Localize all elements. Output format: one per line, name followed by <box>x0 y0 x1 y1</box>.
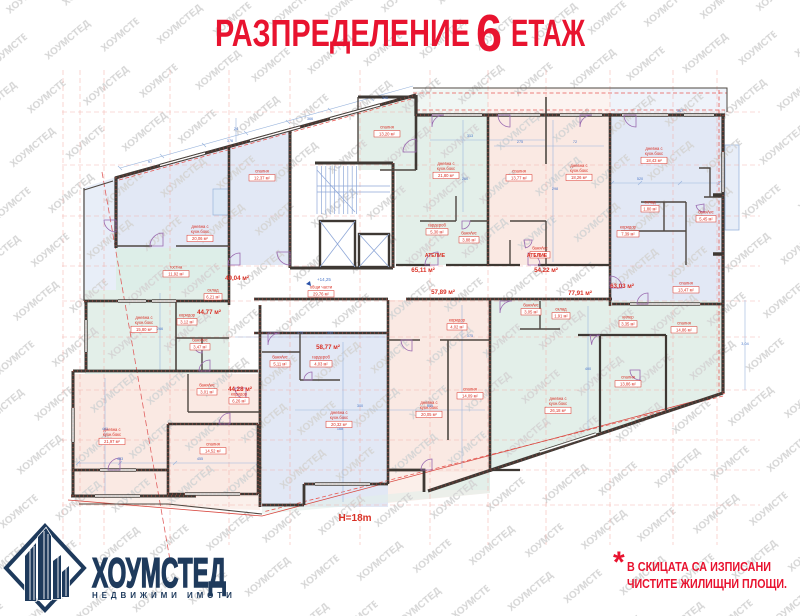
svg-text:5,11 м²: 5,11 м² <box>273 362 287 367</box>
svg-text:АТЕЛИЕ: АТЕЛИЕ <box>527 253 548 259</box>
svg-text:ЧИСТИТЕ ЖИЛИЩНИ ПЛОЩИ.: ЧИСТИТЕ ЖИЛИЩНИ ПЛОЩИ. <box>627 576 787 591</box>
svg-text:баня/wc: баня/wc <box>192 337 208 342</box>
svg-text:баня/wc: баня/wc <box>199 382 215 387</box>
svg-text:спалня: спалня <box>463 386 477 391</box>
svg-text:461: 461 <box>102 427 108 431</box>
svg-text:склад: склад <box>644 199 656 204</box>
svg-text:520: 520 <box>637 177 643 181</box>
svg-text:65,11 м²: 65,11 м² <box>411 267 435 274</box>
svg-text:20,06 м²: 20,06 м² <box>192 236 209 241</box>
svg-text:3,35 м²: 3,35 м² <box>621 322 635 327</box>
svg-text:1,80 м²: 1,80 м² <box>643 207 657 212</box>
svg-text:баня/wc: баня/wc <box>272 354 288 359</box>
svg-text:кухн.бокс: кухн.бокс <box>570 168 588 173</box>
svg-text:3,01 м²: 3,01 м² <box>200 390 214 395</box>
svg-text:168: 168 <box>337 427 343 431</box>
svg-text:376: 376 <box>227 139 233 143</box>
svg-text:кухн.бокс: кухн.бокс <box>103 432 121 437</box>
svg-text:4,03 м²: 4,03 м² <box>314 362 328 367</box>
svg-text:18,43 м²: 18,43 м² <box>646 158 663 163</box>
svg-text:11,92 м²: 11,92 м² <box>168 272 184 277</box>
svg-text:72: 72 <box>573 140 577 144</box>
svg-text:спалня: спалня <box>380 124 394 129</box>
svg-text:НЕДВИЖИМИ ИМОТИ: НЕДВИЖИМИ ИМОТИ <box>92 591 236 600</box>
svg-text:спалня: спалня <box>255 168 269 173</box>
svg-text:5,45 м²: 5,45 м² <box>699 217 713 222</box>
svg-text:97: 97 <box>148 160 152 164</box>
svg-text:400: 400 <box>585 367 591 371</box>
svg-text:гостна: гостна <box>170 264 183 269</box>
svg-text:300: 300 <box>357 404 363 408</box>
svg-text:49,04 м²: 49,04 м² <box>225 275 249 282</box>
svg-text:спалня: спалня <box>206 441 220 446</box>
svg-text:спалня: спалня <box>679 280 693 285</box>
svg-text:5,30 м²: 5,30 м² <box>430 230 444 235</box>
svg-text:14,52 м²: 14,52 м² <box>205 449 222 454</box>
svg-text:298: 298 <box>552 187 558 191</box>
svg-text:655: 655 <box>427 404 433 408</box>
svg-text:6,21 м²: 6,21 м² <box>206 295 220 300</box>
svg-text:3,12 м²: 3,12 м² <box>180 320 194 325</box>
svg-text:44,28 м²: 44,28 м² <box>228 386 252 393</box>
svg-text:14,09 м²: 14,09 м² <box>462 394 479 399</box>
svg-text:склад: склад <box>555 306 567 311</box>
svg-text:275: 275 <box>517 140 523 144</box>
svg-text:3,05 м²: 3,05 м² <box>524 310 538 315</box>
svg-text:57,89 м²: 57,89 м² <box>431 289 455 296</box>
svg-text:4,02 м²: 4,02 м² <box>450 325 464 330</box>
svg-text:коридор: коридор <box>179 312 196 317</box>
svg-text:гардероб: гардероб <box>428 222 446 227</box>
svg-text:12,37 м²: 12,37 м² <box>254 176 271 181</box>
svg-text:21,80 м²: 21,80 м² <box>438 173 455 178</box>
svg-text:В СКИЦАТА СА ИЗПИСАНИ: В СКИЦАТА СА ИЗПИСАНИ <box>627 559 771 574</box>
svg-text:13,77 м²: 13,77 м² <box>511 176 528 181</box>
svg-text:366: 366 <box>307 117 313 121</box>
svg-text:3,88 м²: 3,88 м² <box>462 238 476 243</box>
svg-text:кухн.бокс: кухн.бокс <box>191 229 209 234</box>
svg-text:15,80 м²: 15,80 м² <box>136 327 153 332</box>
svg-text:ХОУМСТЕД: ХОУМСТЕД <box>92 549 226 596</box>
svg-text:коридор: коридор <box>449 317 466 322</box>
svg-text:спалня: спалня <box>621 374 635 379</box>
svg-text:455: 455 <box>197 457 203 461</box>
svg-text:14,86 м²: 14,86 м² <box>676 328 693 333</box>
svg-text:кухн.бокс: кухн.бокс <box>645 151 663 156</box>
svg-text:21,97 м²: 21,97 м² <box>104 439 121 444</box>
svg-text:3,47 м²: 3,47 м² <box>193 345 207 350</box>
svg-text:баня/wc: баня/wc <box>461 230 477 235</box>
svg-text:266: 266 <box>157 327 163 331</box>
svg-text:29,76 м²: 29,76 м² <box>313 292 330 297</box>
svg-text:баня/wc: баня/wc <box>698 209 714 214</box>
svg-text:13,86 м²: 13,86 м² <box>620 382 637 387</box>
svg-text:гардероб: гардероб <box>312 354 330 359</box>
svg-text:63,03 м²: 63,03 м² <box>610 283 634 290</box>
svg-text:44,77 м²: 44,77 м² <box>197 309 221 316</box>
svg-text:346: 346 <box>382 96 388 100</box>
svg-text:300: 300 <box>327 331 333 335</box>
svg-text:7,39 м²: 7,39 м² <box>621 232 635 237</box>
svg-text:175: 175 <box>297 331 303 335</box>
svg-text:6,26 м²: 6,26 м² <box>232 399 246 404</box>
svg-text:коридор: коридор <box>620 224 637 229</box>
svg-text:кухн.бокс: кухн.бокс <box>437 166 455 171</box>
svg-text:кухн.бокс: кухн.бокс <box>135 320 153 325</box>
svg-text:18,26 м²: 18,26 м² <box>571 175 588 180</box>
svg-text:313: 313 <box>467 134 473 138</box>
svg-text:3,04: 3,04 <box>741 342 748 346</box>
svg-text:77,91 м²: 77,91 м² <box>568 290 592 297</box>
svg-text:58,77 м²: 58,77 м² <box>316 344 340 351</box>
svg-text:РАЗПРЕДЕЛЕНИЕ6ЕТАЖ: РАЗПРЕДЕЛЕНИЕ6ЕТАЖ <box>215 5 585 63</box>
svg-text:54,22 м²: 54,22 м² <box>534 267 558 274</box>
svg-text:260: 260 <box>462 177 468 181</box>
svg-text:175: 175 <box>467 334 473 338</box>
svg-text:13,20 м²: 13,20 м² <box>379 132 396 137</box>
svg-text:26,18 м²: 26,18 м² <box>550 408 567 413</box>
svg-text:спалня: спалня <box>512 168 526 173</box>
svg-text:килер: килер <box>622 314 634 319</box>
svg-text:483: 483 <box>117 457 123 461</box>
svg-text:13,47 м²: 13,47 м² <box>678 288 695 293</box>
svg-text:24: 24 <box>234 127 238 131</box>
svg-text:АТЕЛИЕ: АТЕЛИЕ <box>425 253 446 259</box>
svg-text:общи части: общи части <box>310 284 333 289</box>
svg-text:347: 347 <box>677 109 683 113</box>
svg-text:+14,25: +14,25 <box>317 277 331 282</box>
svg-text:склад: склад <box>207 287 219 292</box>
svg-text:1,91 м²: 1,91 м² <box>554 314 568 319</box>
svg-text:баня/wc: баня/wc <box>523 302 539 307</box>
svg-text:кухн.бокс: кухн.бокс <box>330 415 348 420</box>
svg-text:кухн.бокс: кухн.бокс <box>549 401 567 406</box>
svg-text:спалня: спалня <box>677 320 691 325</box>
svg-text:20,05 м²: 20,05 м² <box>421 412 438 417</box>
svg-text:H=18m: H=18m <box>338 513 371 524</box>
svg-text:*: * <box>613 546 625 579</box>
svg-text:баня/wc: баня/wc <box>532 245 548 250</box>
